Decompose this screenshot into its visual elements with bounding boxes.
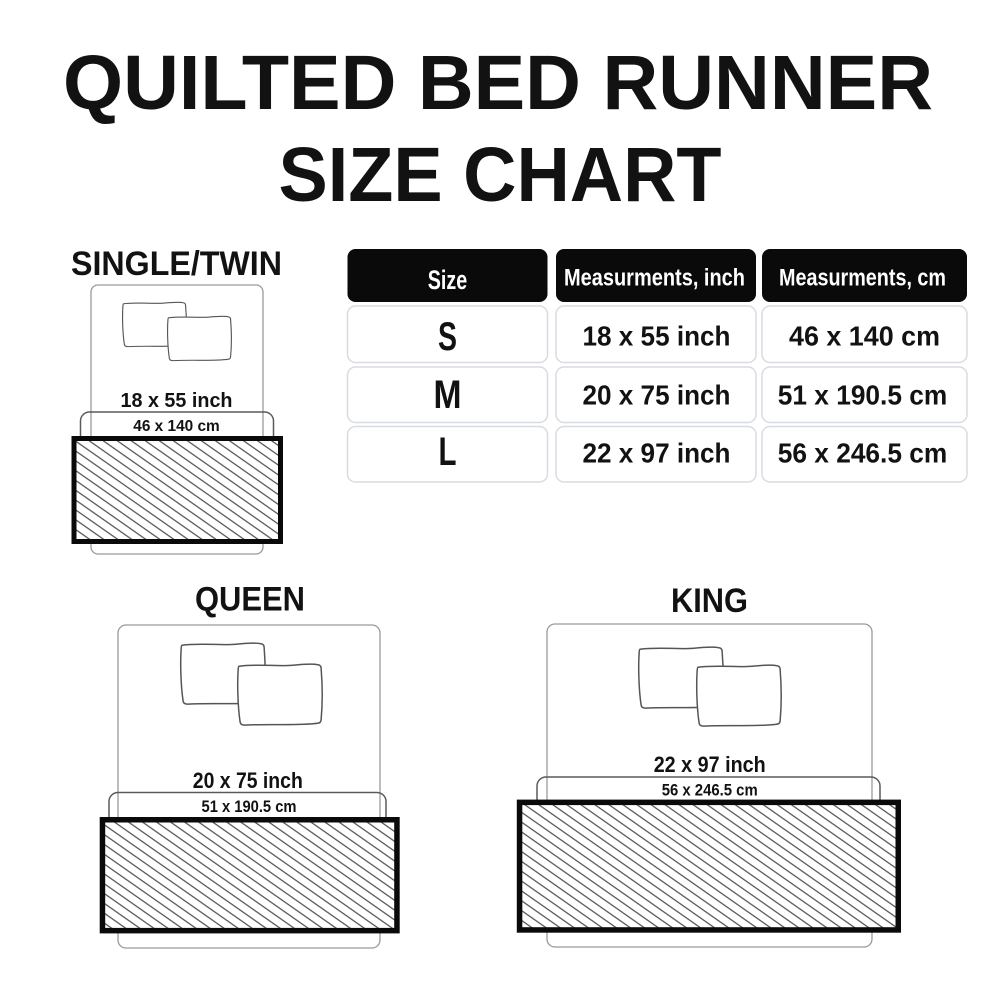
svg-text:Size: Size [428,265,468,295]
svg-text:Measurments, cm: Measurments, cm [779,265,946,292]
svg-text:L: L [439,430,457,474]
svg-text:46 x 140 cm: 46 x 140 cm [133,418,220,435]
svg-text:SIZE CHART: SIZE CHART [279,132,722,218]
svg-text:22 x 97 inch: 22 x 97 inch [654,752,766,777]
svg-text:56 x 246.5 cm: 56 x 246.5 cm [662,781,758,800]
svg-text:SINGLE/TWIN: SINGLE/TWIN [71,245,282,283]
svg-text:18 x 55 inch: 18 x 55 inch [583,321,731,352]
svg-text:51 x 190.5 cm: 51 x 190.5 cm [778,380,948,411]
svg-text:Measurments, inch: Measurments, inch [564,265,745,292]
svg-text:51 x 190.5 cm: 51 x 190.5 cm [202,797,297,816]
svg-text:QUILTED BED RUNNER: QUILTED BED RUNNER [63,40,933,126]
svg-text:S: S [438,315,457,359]
svg-text:20 x 75 inch: 20 x 75 inch [193,768,303,793]
svg-text:KING: KING [671,582,748,620]
svg-text:22 x 97 inch: 22 x 97 inch [583,438,731,469]
svg-text:18 x 55 inch: 18 x 55 inch [121,390,233,412]
svg-text:20 x 75 inch: 20 x 75 inch [583,380,731,411]
svg-text:46 x 140 cm: 46 x 140 cm [789,321,940,352]
svg-text:M: M [434,373,462,417]
svg-text:QUEEN: QUEEN [195,581,305,619]
svg-text:56 x 246.5 cm: 56 x 246.5 cm [778,438,948,469]
